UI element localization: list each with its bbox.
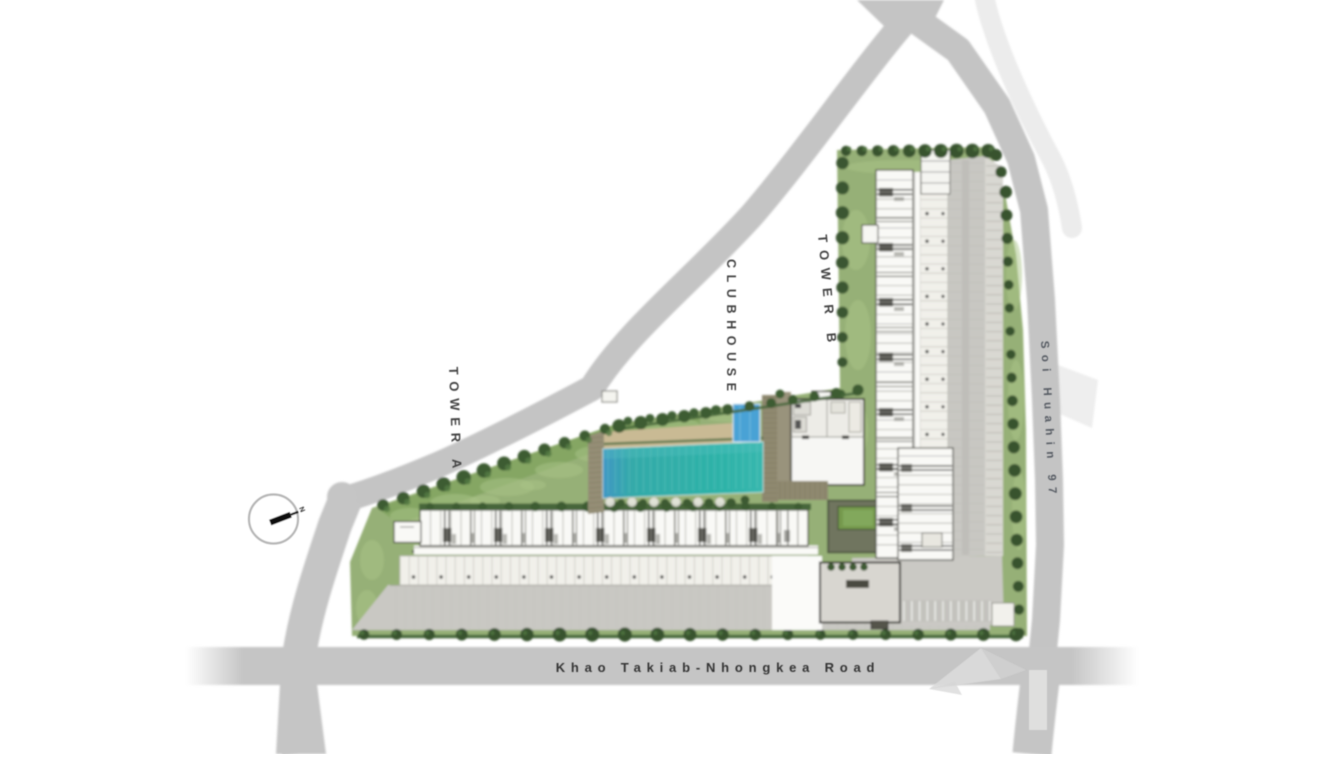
svg-text:Khao Takiab-Nhongkea Road: Khao Takiab-Nhongkea Road: [556, 660, 881, 675]
svg-text:CLUBHOUSE: CLUBHOUSE: [724, 259, 738, 398]
